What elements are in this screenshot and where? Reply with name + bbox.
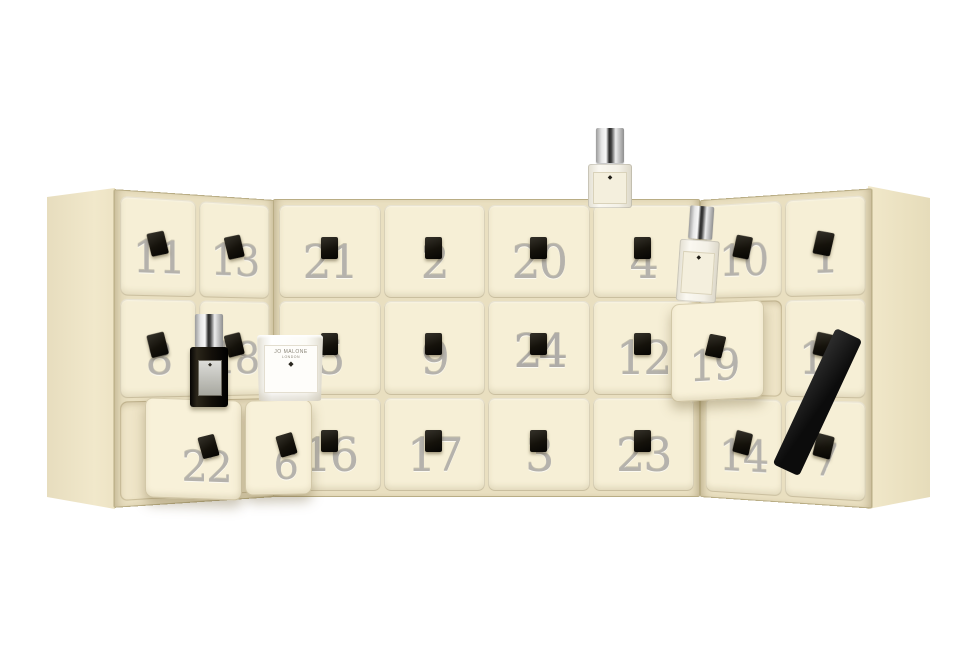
candle-brand-subtext: LONDON [265, 355, 317, 359]
jo-malone-diamond-logo-icon: ◆ [684, 254, 714, 262]
center-panel: 21 2 20 4 5 9 24 12 [273, 199, 700, 497]
drawer-3: 3 [488, 398, 590, 491]
ribbon-pull-icon [321, 333, 338, 355]
bottle-label: ◆ [593, 172, 627, 204]
box-left-side-face [47, 188, 115, 509]
drawer-21: 21 [279, 205, 381, 298]
drawer-9: 9 [384, 301, 486, 394]
drawer-11: 11 [120, 196, 196, 297]
drawer-14: 14 [706, 398, 782, 496]
drawer-13: 13 [199, 201, 270, 299]
drawer-19-pulled-out: 19 [671, 300, 764, 403]
ribbon-pull-icon [634, 333, 651, 355]
ribbon-pull-icon [530, 430, 547, 452]
travel-candle: JO MALONE LONDON ◆ [257, 335, 323, 401]
jo-malone-diamond-logo-icon: ◆ [199, 363, 221, 368]
box-right-side-face [868, 186, 930, 509]
drawer-24-feature: 24 [488, 301, 590, 394]
drawer-17: 17 [384, 398, 486, 491]
bottle-cap [688, 205, 714, 240]
advent-calendar-photo: 11 13 8 18 21 2 20 [0, 0, 980, 653]
cologne-bottle-on-top: ◆ [588, 128, 632, 208]
bottle-label: ◆ [680, 251, 715, 295]
ribbon-pull-icon [321, 430, 338, 452]
drawer-8: 8 [120, 299, 196, 399]
black-cologne-bottle: ◆ [190, 314, 228, 406]
bottle-cap [596, 128, 624, 163]
drawer-1: 1 [784, 195, 865, 297]
drawer-6-pulled-out: 6 [245, 399, 312, 495]
candle-label: JO MALONE LONDON ◆ [264, 345, 318, 393]
jo-malone-diamond-logo-icon: ◆ [265, 361, 317, 369]
cologne-bottle-leaning: ◆ [675, 205, 724, 304]
ribbon-pull-icon [634, 430, 651, 452]
ribbon-pull-icon [425, 430, 442, 452]
jo-malone-diamond-logo-icon: ◆ [594, 175, 626, 181]
ribbon-pull-icon [530, 237, 547, 259]
ribbon-pull-icon [425, 333, 442, 355]
drawer-23: 23 [593, 398, 695, 491]
drawer-2: 2 [384, 205, 486, 298]
drawer-22-pulled-out: 22 [145, 397, 242, 500]
ribbon-pull-icon [425, 237, 442, 259]
bottle-label: ◆ [198, 360, 222, 396]
ribbon-pull-icon [321, 237, 338, 259]
ribbon-pull-icon [634, 237, 651, 259]
bottle-cap [195, 314, 223, 347]
ribbon-pull-icon [530, 333, 547, 355]
drawer-20: 20 [488, 205, 590, 298]
